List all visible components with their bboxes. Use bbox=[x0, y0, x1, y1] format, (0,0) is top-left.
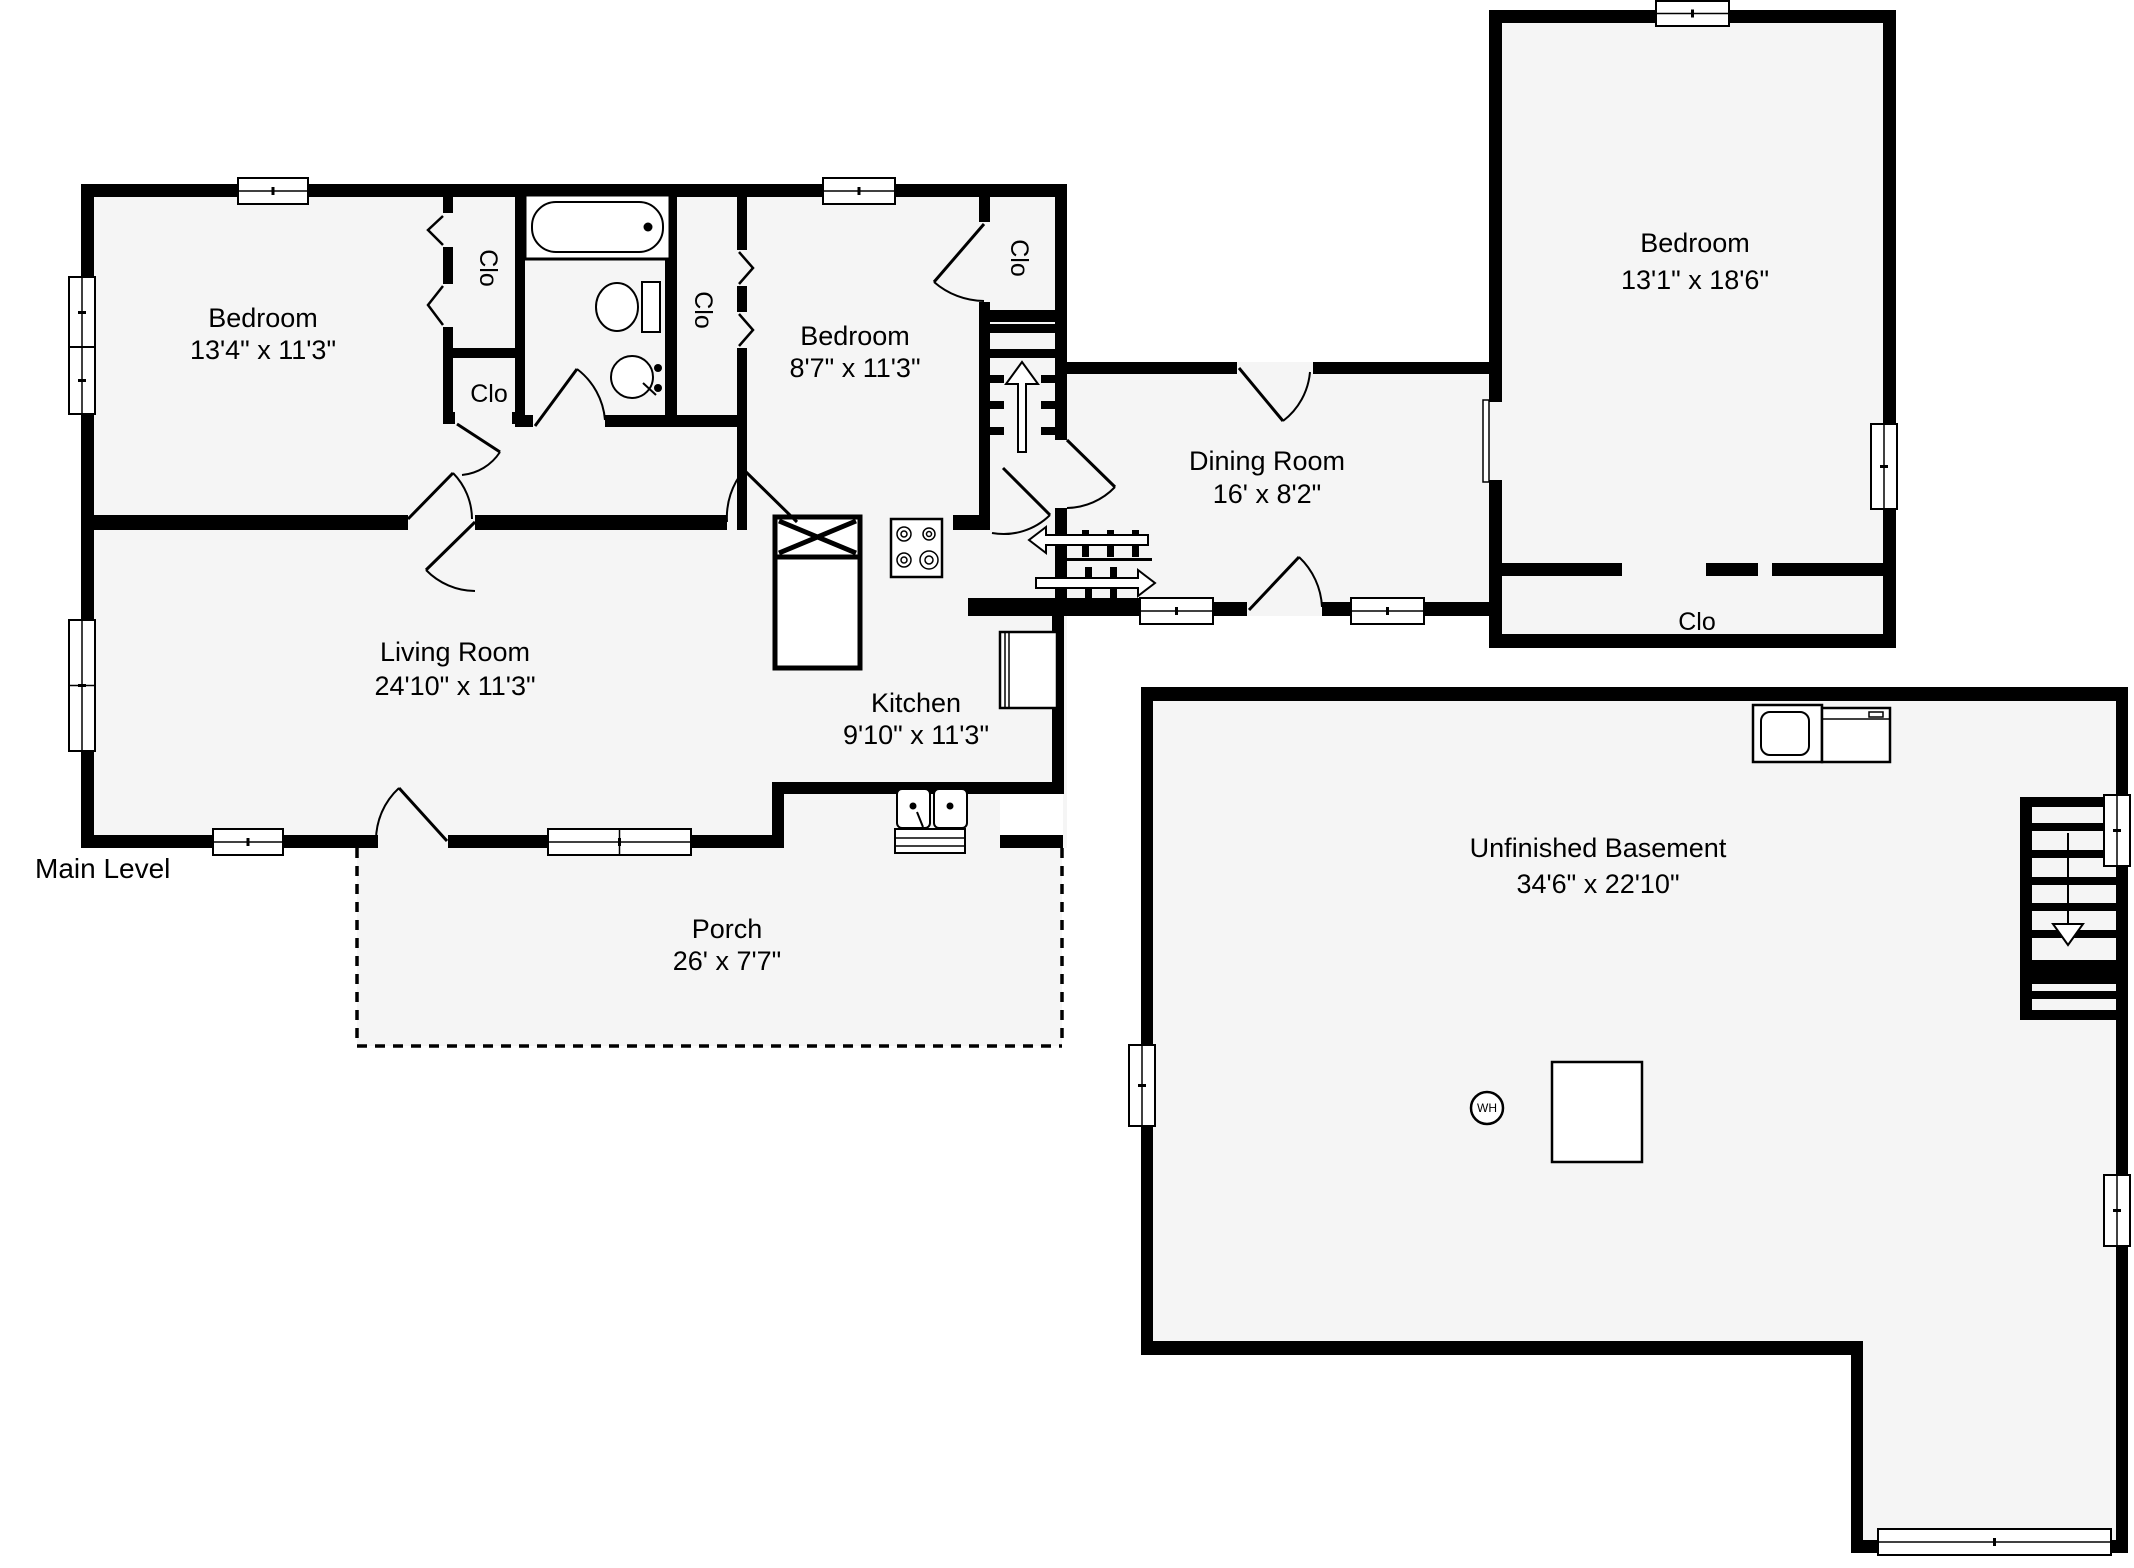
stair-tread bbox=[990, 375, 1004, 383]
wall-bedroom3-left bbox=[1489, 10, 1502, 402]
basement-stair-tread bbox=[2032, 991, 2116, 999]
wall-dining-top bbox=[1055, 362, 1237, 374]
stair-divider bbox=[1055, 558, 1152, 561]
window bbox=[2104, 795, 2130, 866]
furnace bbox=[1552, 1062, 1642, 1162]
window bbox=[2104, 1175, 2130, 1246]
washer bbox=[1822, 708, 1890, 762]
window bbox=[823, 178, 895, 204]
window bbox=[548, 829, 691, 855]
room-label-bedroom-2: Bedroom bbox=[800, 321, 910, 351]
stair-tread bbox=[1041, 427, 1055, 435]
closet-label: Clo bbox=[1678, 608, 1716, 636]
wall-stair-right bbox=[1055, 184, 1067, 440]
stove bbox=[891, 519, 942, 577]
wall-basement-top bbox=[1141, 687, 2128, 701]
wall-basement-stair-left bbox=[2020, 797, 2032, 1020]
wall-closet1-left bbox=[443, 197, 453, 213]
wall-basement-stair-top bbox=[2020, 797, 2116, 807]
wall-bedroom3-bottom bbox=[1706, 563, 1758, 576]
wall-bedroom3-right bbox=[1883, 10, 1896, 648]
wall-closet1-bottom bbox=[443, 348, 525, 358]
window bbox=[213, 829, 283, 855]
window bbox=[69, 620, 95, 751]
window bbox=[69, 277, 95, 348]
wall-basement-stair-bottom bbox=[2020, 1010, 2116, 1020]
floor-bedroom3 bbox=[1489, 10, 1896, 648]
window bbox=[1878, 1529, 2111, 1555]
closet-label: Clo bbox=[474, 249, 502, 287]
wall-closet3-right bbox=[737, 286, 747, 312]
door-slab bbox=[1483, 400, 1489, 482]
window bbox=[1351, 598, 1424, 624]
window bbox=[1871, 424, 1897, 509]
room-label-bedroom-1: Bedroom bbox=[208, 303, 318, 333]
room-dims-living-room: 24'10" x 11'3" bbox=[374, 671, 535, 701]
room-dims-kitchen: 9'10" x 11'3" bbox=[843, 720, 989, 750]
wall-dining-top bbox=[1313, 362, 1501, 374]
room-dims-bedroom-2: 8'7" x 11'3" bbox=[789, 353, 920, 383]
window bbox=[1656, 1, 1729, 26]
room-label-kitchen: Kitchen bbox=[871, 688, 961, 718]
window bbox=[238, 178, 308, 204]
wall-bedroom3-clo-bottom bbox=[1489, 634, 1896, 648]
wall-bedroom3-bottom bbox=[1772, 563, 1896, 576]
window bbox=[1129, 1045, 1155, 1126]
room-label-dining-room: Dining Room bbox=[1189, 446, 1345, 476]
wall-bedroomzone-bottom bbox=[475, 515, 727, 530]
plan-shapes bbox=[69, 1, 2130, 1555]
toilet-tank bbox=[642, 282, 660, 332]
basement-stair-tread bbox=[2032, 903, 2116, 911]
porch-step-strip bbox=[1000, 794, 1063, 835]
floorplan-svg: Bedroom13'4" x 11'3"Bedroom8'7" x 11'3"L… bbox=[0, 0, 2134, 1563]
room-dims-bedroom-1: 13'4" x 11'3" bbox=[190, 335, 336, 365]
kitchen-sink-sill bbox=[895, 829, 965, 853]
stair-tread bbox=[990, 324, 1055, 333]
wall-stair-right bbox=[1055, 508, 1067, 605]
wall-closet3-right bbox=[737, 348, 747, 530]
room-label-bedroom-3: Bedroom bbox=[1640, 228, 1750, 258]
level-label: Main Level bbox=[35, 853, 170, 884]
wall-bath-bottom bbox=[515, 415, 533, 427]
room-label-living-room: Living Room bbox=[380, 637, 530, 667]
wall-closet3-right bbox=[737, 197, 747, 250]
wall-closet1-left bbox=[443, 327, 453, 424]
basement-stair-landing bbox=[2032, 960, 2116, 984]
bath-sink bbox=[611, 356, 653, 398]
wall-bedroomzone-bottom bbox=[81, 515, 408, 530]
wall-bedroom2-right bbox=[979, 302, 990, 530]
basement-stair-tread bbox=[2032, 877, 2116, 885]
wall-bedroom3-bottom bbox=[1489, 563, 1622, 576]
kitchen-sink-faucet bbox=[947, 803, 954, 810]
wall-basement-left bbox=[1141, 687, 1153, 1355]
room-dims-porch: 26' x 7'7" bbox=[673, 946, 781, 976]
wall-bedroom2-right bbox=[979, 197, 990, 222]
bath-sink-faucet bbox=[654, 364, 662, 372]
wall-cloupper-bottom bbox=[979, 310, 1067, 322]
water-heater-label: WH bbox=[1477, 1101, 1497, 1115]
wall-basement-step bbox=[1851, 1341, 1863, 1553]
room-dims-bedroom-3: 13'1" x 18'6" bbox=[1621, 265, 1769, 295]
room-label-unfinished-basement: Unfinished Basement bbox=[1470, 833, 1727, 863]
closet-label: Clo bbox=[1005, 239, 1033, 277]
stair-tread bbox=[990, 349, 1055, 358]
closet-label: Clo bbox=[689, 291, 717, 329]
kitchen-sink-faucet bbox=[910, 803, 917, 810]
room-label-porch: Porch bbox=[692, 914, 763, 944]
closet-label: Clo bbox=[470, 380, 508, 408]
bathtub-drain bbox=[644, 223, 653, 232]
wall-closet2-bottom bbox=[443, 412, 455, 424]
stair-tread bbox=[990, 427, 1004, 435]
stair-tread bbox=[990, 401, 1004, 409]
floorplan-page: Bedroom13'4" x 11'3"Bedroom8'7" x 11'3"L… bbox=[0, 0, 2134, 1563]
toilet-bowl bbox=[596, 283, 638, 331]
wall-closet1-left bbox=[443, 247, 453, 284]
stair-tread bbox=[1041, 401, 1055, 409]
wall-porch-corner bbox=[1000, 835, 1063, 848]
room-dims-dining-room: 16' x 8'2" bbox=[1213, 479, 1321, 509]
bath-sink-faucet bbox=[654, 384, 662, 392]
window bbox=[1140, 598, 1213, 624]
wall-basement-bottom bbox=[1141, 1341, 1863, 1355]
window bbox=[69, 347, 95, 414]
room-dims-unfinished-basement: 34'6" x 22'10" bbox=[1516, 869, 1679, 899]
stair-tread bbox=[1041, 375, 1055, 383]
